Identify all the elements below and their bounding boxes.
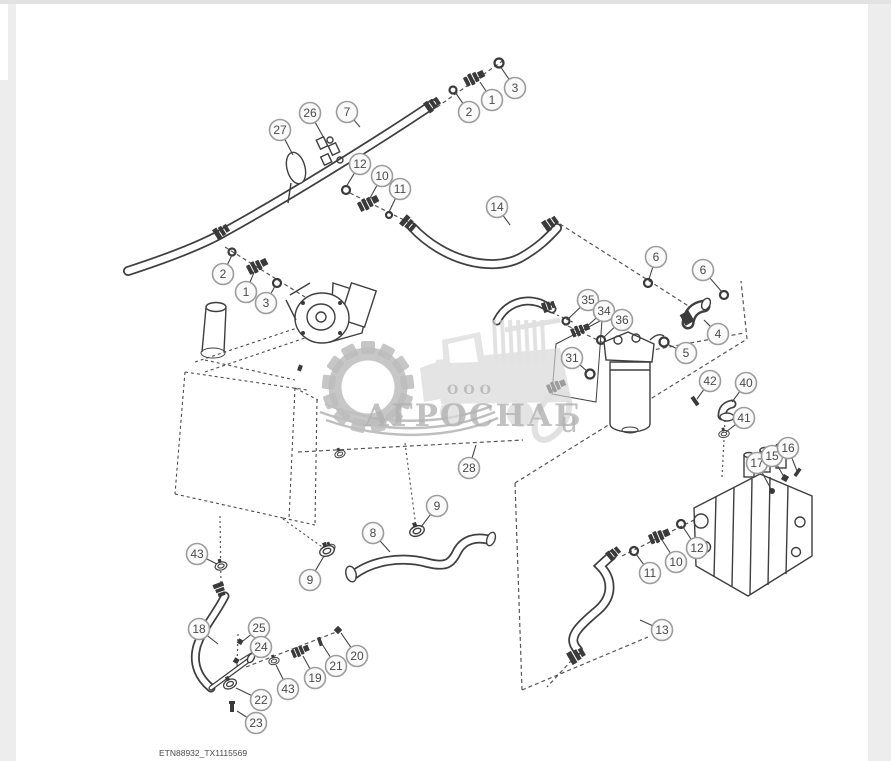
fitting-cluster-mid xyxy=(342,186,392,218)
callout-number: 19 xyxy=(308,671,322,685)
drawing-number-label: ETN88932_TX1115569 xyxy=(159,748,247,758)
callout-26: 26 xyxy=(300,103,326,141)
callout-22: 22 xyxy=(236,688,272,711)
callout-number: 28 xyxy=(462,461,476,475)
callout-number: 11 xyxy=(394,182,407,196)
callout-number: 25 xyxy=(252,621,266,635)
callout-11: 11 xyxy=(636,554,661,584)
callout-number: 6 xyxy=(653,250,660,264)
nut-24 xyxy=(233,657,240,664)
callout-number: 36 xyxy=(615,313,629,327)
plug-15 xyxy=(781,474,789,482)
callout-number: 9 xyxy=(434,499,441,513)
callout-number: 43 xyxy=(281,682,295,696)
callout-14: 14 xyxy=(487,197,511,226)
callout-3: 3 xyxy=(256,286,277,314)
callout-number: 2 xyxy=(220,267,227,281)
callout-6: 6 xyxy=(693,260,723,293)
callout-1: 1 xyxy=(480,82,503,111)
callout-31: 31 xyxy=(562,348,589,373)
watermark-suffix: u xyxy=(561,407,577,439)
callout-43: 43 xyxy=(276,665,299,700)
callout-number: 27 xyxy=(273,123,287,137)
callout-number: 13 xyxy=(655,623,669,637)
callout-10: 10 xyxy=(369,166,393,201)
callout-7: 7 xyxy=(337,102,361,128)
callout-19: 19 xyxy=(303,656,326,689)
callout-number: 31 xyxy=(565,351,579,365)
callout-number: 15 xyxy=(765,449,779,463)
callout-4: 4 xyxy=(704,320,729,345)
callout-number: 4 xyxy=(715,327,722,341)
callout-number: 11 xyxy=(644,566,657,580)
callout-28: 28 xyxy=(459,445,480,479)
callout-number: 22 xyxy=(254,693,268,707)
callout-9: 9 xyxy=(421,496,448,528)
callout-8: 8 xyxy=(363,523,391,553)
callout-number: 9 xyxy=(307,573,314,587)
callout-number: 1 xyxy=(489,93,496,107)
callout-number: 1 xyxy=(243,285,250,299)
callout-23: 23 xyxy=(237,711,267,734)
callout-number: 42 xyxy=(703,374,717,388)
callout-number: 5 xyxy=(683,346,690,360)
bolt-23 xyxy=(230,703,234,712)
callout-2: 2 xyxy=(213,255,234,285)
hydraulic-pump xyxy=(286,283,376,343)
parts-diagram: ООО АГРОСНАБ u 3122672712101114213663534… xyxy=(0,0,891,761)
callout-9: 9 xyxy=(300,556,325,591)
hose-8 xyxy=(317,520,497,583)
callout-number: 26 xyxy=(303,106,317,120)
callout-number: 23 xyxy=(249,716,263,730)
callout-1: 1 xyxy=(236,270,257,303)
watermark-company: АГРОСНАБ xyxy=(364,398,583,434)
callout-number: 10 xyxy=(375,169,389,183)
fitting-40-group xyxy=(690,396,734,439)
callout-42: 42 xyxy=(697,371,721,400)
watermark: ООО АГРОСНАБ u xyxy=(320,320,583,446)
callout-13: 13 xyxy=(640,620,673,641)
callout-number: 20 xyxy=(350,649,364,663)
clamp-43 xyxy=(267,654,280,666)
hose-13 xyxy=(566,545,622,665)
fitting-cluster-top xyxy=(450,59,504,94)
callout-number: 7 xyxy=(344,105,351,119)
tank-clamp xyxy=(333,446,346,459)
callout-number: 43 xyxy=(190,547,204,561)
callout-40: 40 xyxy=(732,373,757,403)
callout-number: 2 xyxy=(466,105,473,119)
callout-2: 2 xyxy=(455,92,480,123)
hose-14 xyxy=(399,214,560,264)
callout-number: 35 xyxy=(581,293,595,307)
fitting-cluster-valve xyxy=(630,520,685,555)
callout-3: 3 xyxy=(500,66,526,99)
callout-number: 41 xyxy=(737,411,751,425)
callout-number: 21 xyxy=(329,659,343,673)
callout-5: 5 xyxy=(667,343,697,364)
callout-number: 24 xyxy=(254,640,268,654)
callout-10: 10 xyxy=(662,540,687,573)
callout-21: 21 xyxy=(322,644,347,677)
fitting-19 xyxy=(290,643,310,659)
callout-43: 43 xyxy=(187,544,218,565)
callout-number: 3 xyxy=(512,81,519,95)
callout-number: 10 xyxy=(669,555,683,569)
callout-number: 14 xyxy=(490,200,504,214)
callout-number: 34 xyxy=(597,304,611,318)
callout-6: 6 xyxy=(646,247,667,280)
callout-number: 6 xyxy=(700,263,707,277)
callout-number: 12 xyxy=(690,541,704,555)
callout-11: 11 xyxy=(389,179,411,213)
callout-number: 3 xyxy=(263,296,270,310)
callout-number: 16 xyxy=(781,441,795,455)
fitting-cluster-pump xyxy=(229,249,282,288)
bolt-16 xyxy=(793,468,801,477)
callout-number: 18 xyxy=(192,622,206,636)
hose-clamp-9 xyxy=(407,520,426,538)
callout-27: 27 xyxy=(270,120,294,156)
nut-20 xyxy=(334,626,342,634)
callout-number: 40 xyxy=(739,376,753,390)
callout-number: 8 xyxy=(370,526,377,540)
watermark-prefix: ООО xyxy=(447,383,496,398)
hose-clamp-9 xyxy=(317,540,336,558)
clamp-43 xyxy=(213,557,227,571)
callout-number: 12 xyxy=(353,157,367,171)
